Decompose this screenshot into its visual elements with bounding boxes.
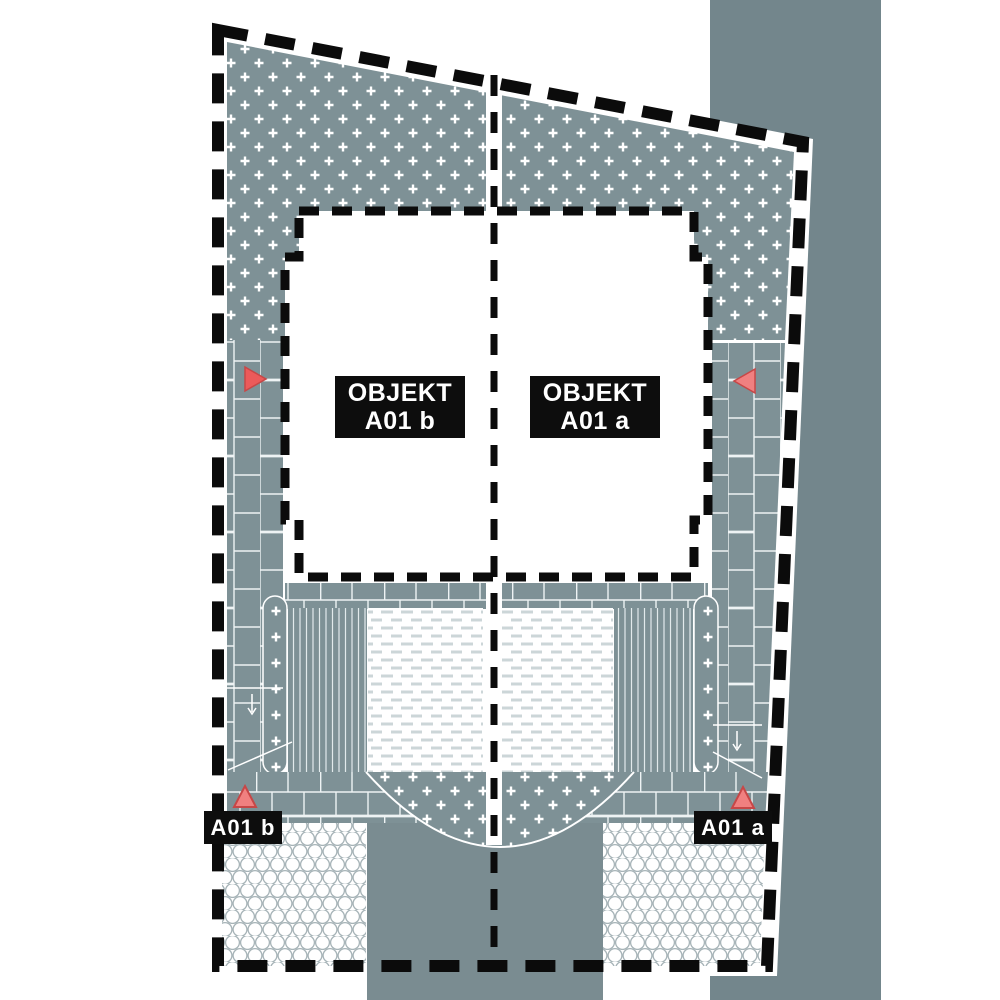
objekt-a01b-label: OBJEKT A01 b — [335, 376, 465, 438]
objekt-a01a-label: OBJEKT A01 a — [530, 376, 660, 438]
objekt-a01a-line2: A01 a — [560, 407, 629, 435]
patio-west — [368, 608, 483, 772]
entrance-a01a-text: A01 a — [701, 815, 765, 841]
objekt-a01b-line2: A01 b — [365, 407, 436, 435]
site-plan-drawing — [0, 0, 1000, 1000]
hedge-east — [694, 596, 718, 774]
hex-paving-west — [222, 823, 366, 966]
hex-paving-east — [603, 823, 765, 966]
entrance-a01b-text: A01 b — [211, 815, 276, 841]
entrance-a01b-label: A01 b — [204, 811, 282, 844]
driveway-road — [367, 823, 603, 1000]
objekt-a01a-line1: OBJEKT — [543, 379, 647, 407]
terrace-east — [614, 608, 693, 772]
terrace-west — [288, 608, 367, 772]
site-plan: OBJEKT A01 b OBJEKT A01 a A01 b A01 a — [0, 0, 1000, 1000]
hedge-west — [263, 596, 287, 774]
patio-east — [499, 608, 613, 772]
entrance-a01a-label: A01 a — [694, 811, 772, 844]
objekt-a01b-line1: OBJEKT — [348, 379, 452, 407]
